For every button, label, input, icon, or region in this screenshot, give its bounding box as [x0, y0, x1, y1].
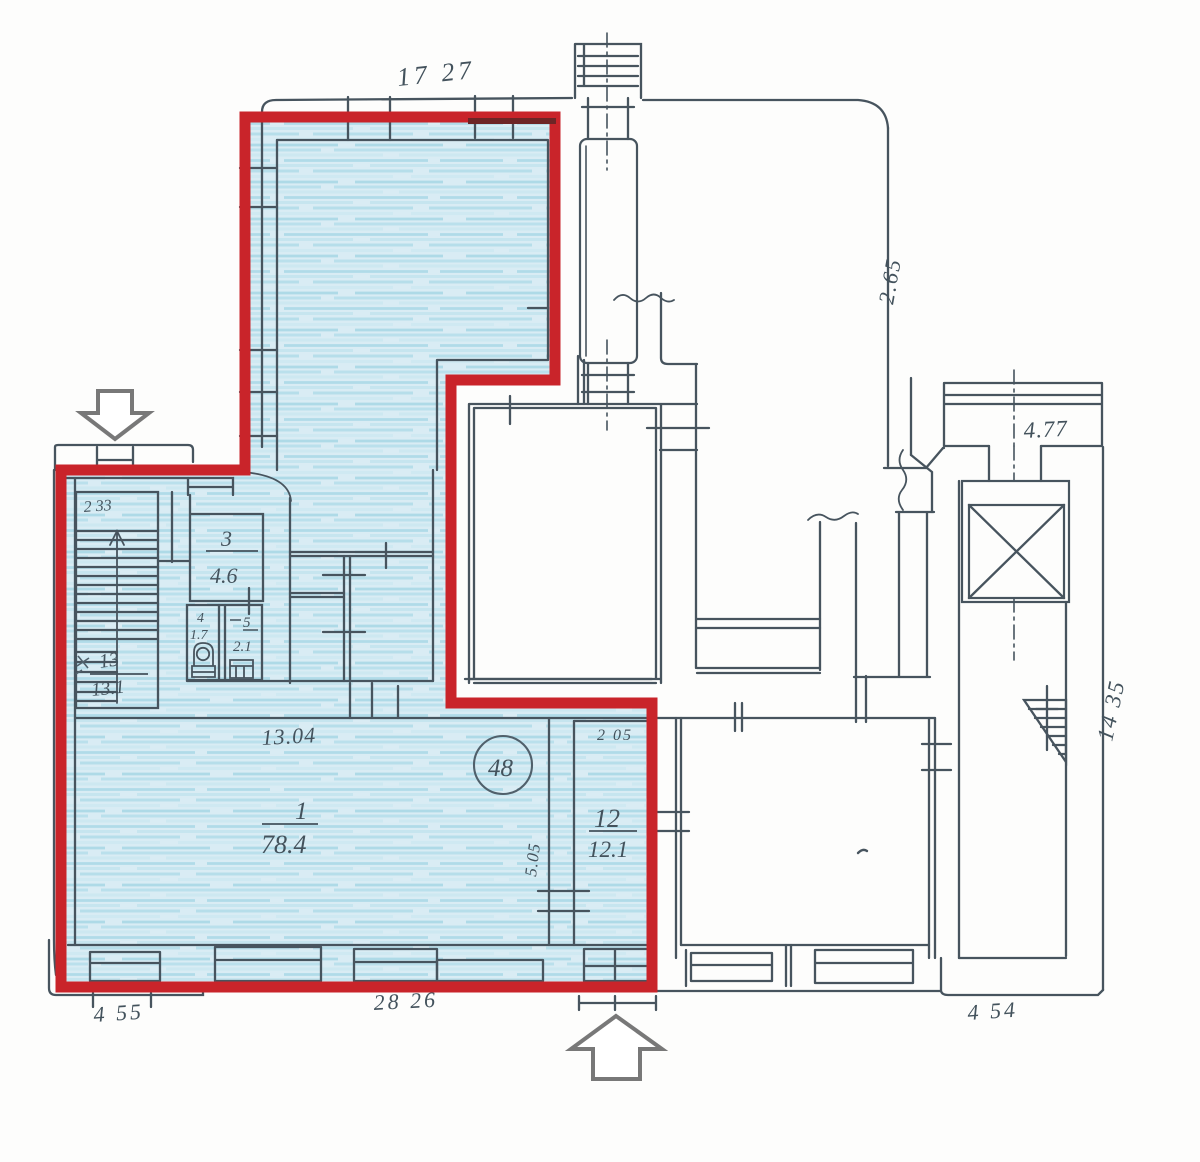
svg-text:4.77: 4.77	[1023, 416, 1069, 443]
svg-text:4.6: 4.6	[210, 563, 238, 588]
svg-text:78.4: 78.4	[261, 830, 307, 859]
svg-text:2 05: 2 05	[597, 727, 633, 744]
svg-text:4 55: 4 55	[93, 999, 145, 1027]
svg-text:2 33: 2 33	[83, 497, 112, 516]
svg-text:1: 1	[295, 798, 308, 825]
svg-text:5: 5	[243, 615, 251, 631]
svg-text:1.7: 1.7	[190, 628, 209, 643]
svg-text:13.04: 13.04	[261, 722, 317, 750]
svg-text:13.1: 13.1	[90, 677, 125, 701]
svg-text:12.1: 12.1	[588, 837, 628, 862]
svg-text:48: 48	[488, 755, 514, 782]
svg-text:2.1: 2.1	[233, 639, 252, 655]
svg-text:4 54: 4 54	[967, 997, 1019, 1025]
svg-text:12: 12	[594, 804, 620, 833]
svg-text:28 26: 28 26	[373, 987, 439, 1015]
svg-text:4: 4	[197, 611, 204, 626]
svg-text:3: 3	[220, 526, 232, 551]
svg-text:13: 13	[98, 648, 121, 673]
